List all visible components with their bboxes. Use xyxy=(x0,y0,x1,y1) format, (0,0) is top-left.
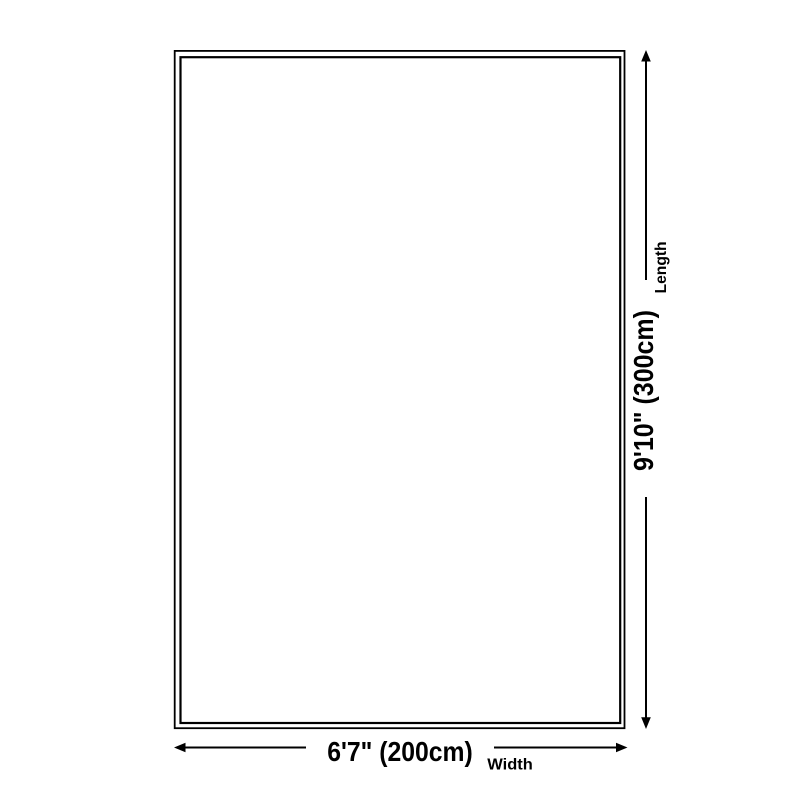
svg-text:9'10" (300cm): 9'10" (300cm) xyxy=(628,310,659,471)
svg-text:Length: Length xyxy=(653,241,670,293)
svg-text:6'7" (200cm): 6'7" (200cm) xyxy=(327,736,473,767)
svg-text:Width: Width xyxy=(487,757,533,774)
